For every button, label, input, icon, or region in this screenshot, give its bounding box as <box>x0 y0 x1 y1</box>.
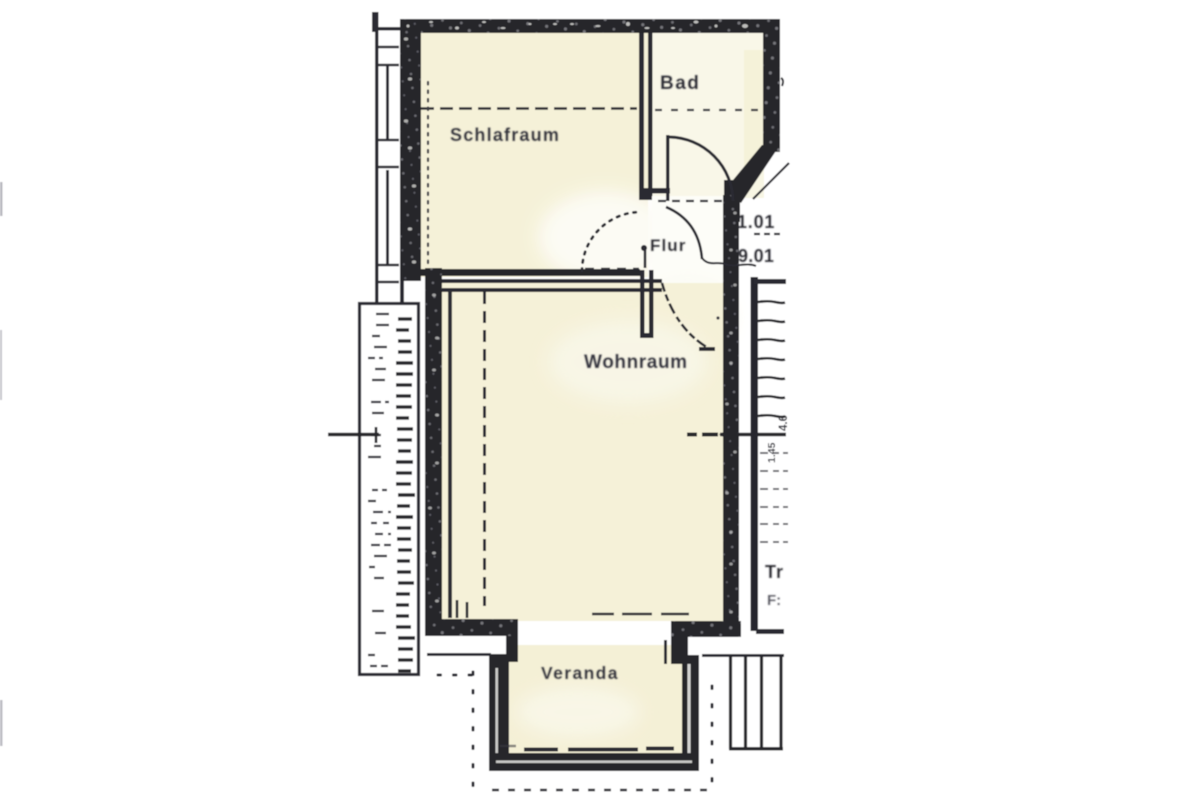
svg-text:F:: F: <box>767 592 781 609</box>
svg-text:Schlafraum: Schlafraum <box>450 125 560 145</box>
svg-text:Wohnraum: Wohnraum <box>584 352 688 373</box>
svg-text:1.01: 1.01 <box>737 212 775 232</box>
svg-text:Bad: Bad <box>660 73 700 94</box>
svg-text:Veranda: Veranda <box>541 663 619 683</box>
svg-text:Tr: Tr <box>765 562 784 582</box>
svg-text:Flur: Flur <box>650 236 687 255</box>
svg-text:9.01: 9.01 <box>738 246 774 266</box>
